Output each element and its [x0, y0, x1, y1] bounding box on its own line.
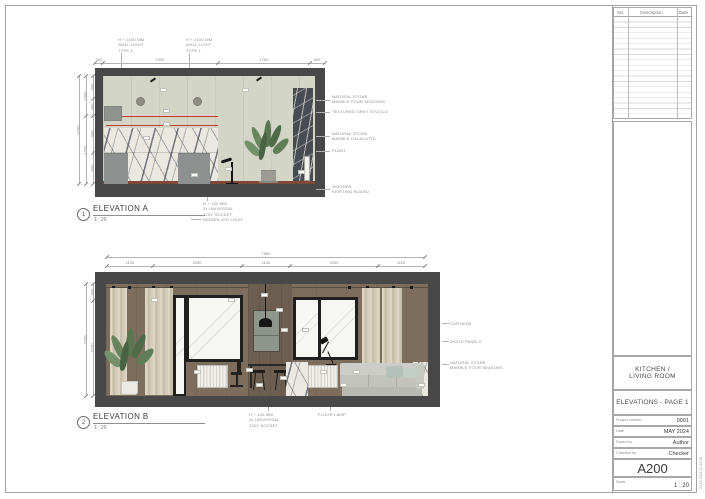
callout-curtains: CURTAINS [450, 321, 472, 326]
fixture-tag [225, 167, 232, 171]
fixture-tag [261, 293, 268, 297]
revision-table-rows [614, 17, 691, 118]
level-line-red [106, 125, 218, 126]
field-value: Checker [669, 451, 689, 457]
wall-light-sconce [193, 97, 202, 106]
sofa-pillow [386, 366, 404, 378]
dim-value: 430 [90, 289, 95, 296]
fixture-tag [242, 88, 249, 92]
dim-value: 1000 [83, 92, 88, 101]
drawing-sheet: H + 2100 MM WALL LIGHT TYPE 1 H + 2100 M… [0, 0, 705, 499]
dim-value: 1140 [262, 260, 271, 265]
sheet-title-box: ELEVATIONS - PAGE 1 [613, 390, 692, 415]
sheet-number: A200 [637, 461, 667, 476]
revision-col-divider [677, 8, 678, 118]
revision-table: No. Description Date [613, 7, 692, 119]
fixture-tag [320, 370, 327, 374]
fixture-tag [163, 122, 170, 126]
scale-value: 1 : 20 [674, 483, 689, 489]
dim-value: 800 [90, 165, 95, 172]
callout-wood-panels: WOOD PANELS [450, 339, 482, 344]
chair-base [230, 385, 243, 387]
leader-line [268, 407, 269, 411]
curtain-bracket [348, 286, 351, 289]
fixture-tag [340, 383, 347, 387]
fixture-tag [160, 88, 167, 92]
field-value: Author [673, 440, 689, 446]
glass-door [173, 295, 186, 396]
callout-skirting-board: WOODEN SKIRTING BOARD [332, 184, 369, 195]
sofa [340, 360, 424, 396]
ceiling-spot-light [150, 77, 156, 82]
floor-lamp-base [226, 183, 238, 185]
dim-value: 1780 [260, 57, 269, 62]
leader-line [442, 364, 449, 365]
project-title-line1: KITCHEN / [635, 366, 670, 373]
elevation-a-title: ELEVATION A [93, 204, 148, 213]
dim-line [95, 63, 325, 64]
fixture-tag [151, 298, 158, 302]
radiator [308, 365, 338, 388]
desk-lamp-arm [327, 351, 333, 363]
fixture-tag [191, 173, 198, 177]
elevation-b-scale: 1 : 20 [94, 425, 107, 431]
elevation-a-title-line [93, 215, 205, 216]
leader-line [316, 112, 330, 113]
dim-value: 2090 [193, 260, 202, 265]
dim-value: 600 [314, 57, 321, 62]
elevation-a-scale: 1 : 20 [94, 217, 107, 223]
dim-value: 7560 [262, 251, 271, 256]
fixture-tag [143, 136, 150, 140]
fixture-tag [281, 328, 288, 332]
fixture-tag [280, 376, 287, 380]
desk-lamp-base [326, 364, 336, 366]
wall-cabinet [104, 106, 122, 121]
fixture-tag [353, 370, 360, 374]
curtain-bracket [410, 286, 413, 289]
dim-line [107, 257, 425, 258]
window-1 [186, 295, 243, 362]
revision-col-description: Description [628, 8, 676, 16]
sheet-title: ELEVATIONS - PAGE 1 [616, 399, 688, 406]
fixture-tag [163, 109, 170, 113]
callout-marble-calacatta: NATURAL STONE MARBLE CALACATTA [332, 131, 376, 142]
elevation-a-drawing [95, 68, 325, 197]
field-project-number: Project number 0001 [613, 415, 692, 426]
revision-col-divider [628, 8, 629, 118]
fixture-tag [246, 368, 253, 372]
dim-value: 300 [96, 57, 103, 62]
leader-line [316, 100, 330, 101]
chair-column [236, 375, 238, 385]
office-chair [228, 360, 244, 390]
plant-saucer [259, 181, 278, 183]
field-drawn-by: Drawn by Author [613, 437, 692, 448]
marble-console [286, 362, 308, 396]
revision-table-header: No. Description Date [614, 8, 691, 17]
panel-white-insert [304, 156, 310, 181]
wall-mirror [253, 310, 280, 352]
fixture-tag [298, 170, 305, 174]
leader-line [316, 136, 330, 137]
leader-line [330, 407, 331, 411]
consultant-box [613, 121, 692, 356]
callout-floor-lamp: FLOOR LAMP [318, 412, 346, 417]
radiator [197, 365, 228, 388]
scale-label: Scale [616, 480, 626, 484]
callout-socket-b: H + 100 MM 2x UNIVERSAL 220V SOCKET [249, 412, 279, 428]
mirror-shelf-line [254, 335, 279, 336]
project-title-box: KITCHEN / LIVING ROOM [613, 356, 692, 390]
field-checked-by: Checked by Checker [613, 448, 692, 459]
dim-value: 2700 [83, 336, 88, 345]
elevation-a-marker: 1 [77, 208, 90, 221]
callout-plant: PLANT [332, 148, 346, 153]
dim-value: 1110 [397, 260, 405, 265]
sofa-seam [368, 375, 369, 387]
desk-lamp [320, 338, 342, 366]
field-label: Checked by [616, 451, 636, 455]
wall-light-sconce [136, 97, 145, 106]
fixture-tag [256, 383, 263, 387]
plant [248, 120, 288, 184]
field-label: Drawn by [616, 440, 632, 444]
elevation-b-marker: 2 [77, 416, 90, 429]
scale-box: Scale 1 : 20 [613, 477, 692, 491]
dim-value: 400 [90, 104, 95, 111]
dim-value: 2330 [156, 57, 165, 62]
curtain-bracket [128, 286, 131, 289]
pendant-cord [265, 284, 266, 320]
callout-wall-light-1: H + 2100 MM WALL LIGHT TYPE 1 [118, 37, 144, 53]
dim-value: 600 [90, 84, 95, 91]
sofa-pillow [403, 368, 418, 379]
field-label: Project number [616, 418, 642, 422]
plant [108, 328, 152, 396]
callout-marble-four-seasons-b: NATURAL STONE MARBLE FOUR SEASONS [450, 360, 503, 371]
field-label: Date [616, 429, 624, 433]
stool [252, 370, 265, 390]
dim-value: 900 [90, 131, 95, 138]
pendant-lamp [259, 318, 272, 327]
dim-value: 2700 [76, 126, 81, 135]
fixture-tag [418, 383, 425, 387]
field-value: MAY 2024 [664, 429, 689, 435]
door-glass [176, 298, 184, 394]
elevation-b-interior-wall [106, 284, 428, 396]
revision-col-no: No. [614, 8, 628, 16]
sofa-base [342, 387, 422, 396]
elevation-b-title-line [93, 423, 205, 424]
fixture-tag [276, 308, 283, 312]
fixture-tag [302, 328, 309, 332]
base-cabinet [178, 153, 210, 184]
fixture-tag [228, 298, 235, 302]
field-date: Date MAY 2024 [613, 426, 692, 437]
leader-line [191, 219, 201, 220]
level-line-red [120, 116, 218, 117]
window-glass [189, 298, 240, 359]
leader-line [442, 323, 449, 324]
stool-leg [274, 373, 277, 390]
callout-socket-a: H + 100 MM 2x UNIVERSAL 220V SOCKET [203, 201, 233, 217]
plant-pot [121, 381, 138, 395]
base-cabinet [104, 153, 128, 184]
fixture-tag [194, 370, 201, 374]
plot-stamp: 23.05.2024 21:44:39 [699, 457, 703, 489]
elevation-a-interior-wall [103, 76, 315, 184]
dim-value: 2270 [90, 344, 95, 353]
callout-hidden-led: HIDDEN LED LIGHT [203, 217, 243, 222]
ceiling-spot-light [256, 76, 262, 81]
elevation-b-drawing [95, 272, 440, 407]
stool-seat [252, 370, 265, 373]
leader-line [316, 189, 330, 190]
callout-grey-stucco: TEXTURED GREY STUCCO [332, 109, 388, 114]
elevation-b-title: ELEVATION B [93, 412, 149, 421]
leader-line [316, 151, 330, 152]
dim-value: 2090 [330, 260, 339, 265]
dim-value: 1700 [83, 146, 88, 155]
dim-value: 1120 [126, 260, 135, 265]
floor-lamp [219, 158, 241, 184]
project-title-line2: LIVING ROOM [629, 373, 676, 380]
callout-wall-light-2: H + 2100 MM WALL LIGHT TYPE 1 [186, 37, 212, 53]
callout-marble-four-seasons: NATURAL STONE MARBLE FOUR SEASONS [332, 94, 385, 105]
sheet-number-box: A200 [613, 459, 692, 477]
leader-line [442, 341, 449, 342]
floor-lamp-stem [231, 162, 233, 183]
field-value: 0001 [677, 418, 689, 424]
